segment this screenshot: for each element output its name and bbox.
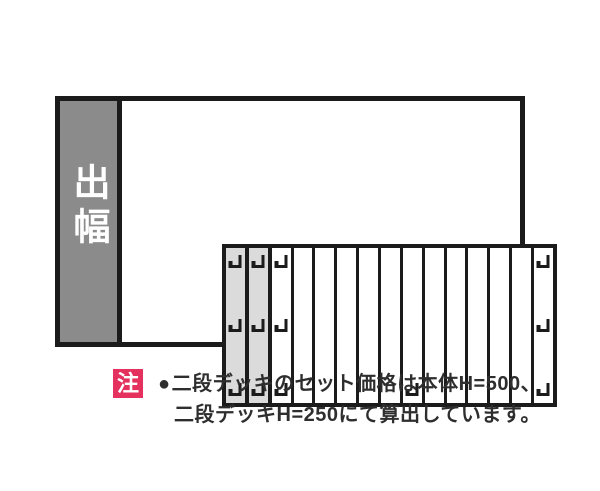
deck-clip-icon — [252, 319, 265, 332]
deck-clip-icon — [275, 319, 288, 332]
note-line1: ●二段デッキのセット価格は本体H=500、 — [158, 369, 541, 400]
note-line1-text: 二段デッキのセット価格は本体H=500、 — [172, 373, 542, 395]
depth-label: 出幅 — [70, 163, 107, 251]
bullet-icon: ● — [158, 373, 171, 395]
deck-clip-icon — [537, 319, 550, 332]
deck-clip-icon — [252, 255, 265, 268]
deck-clip-icon — [537, 255, 550, 268]
note-text: ●二段デッキのセット価格は本体H=500、 二段デッキH=250にて算出していま… — [158, 369, 541, 431]
note-row: 注 ●二段デッキのセット価格は本体H=500、 二段デッキH=250にて算出して… — [113, 369, 541, 431]
deck-clip-icon — [275, 255, 288, 268]
deck-plan-frame: 出幅 — [55, 96, 525, 347]
depth-band: 出幅 — [60, 101, 122, 342]
note-line2: 二段デッキH=250にて算出しています。 — [158, 400, 541, 431]
deck-clip-icon — [229, 319, 242, 332]
deck-pricing-diagram: 出幅 注 ●二段デッキのセット価格は本体H=500、 二段デッキH=250にて算… — [0, 0, 600, 491]
note-badge: 注 — [113, 369, 143, 398]
deck-clip-icon — [229, 255, 242, 268]
